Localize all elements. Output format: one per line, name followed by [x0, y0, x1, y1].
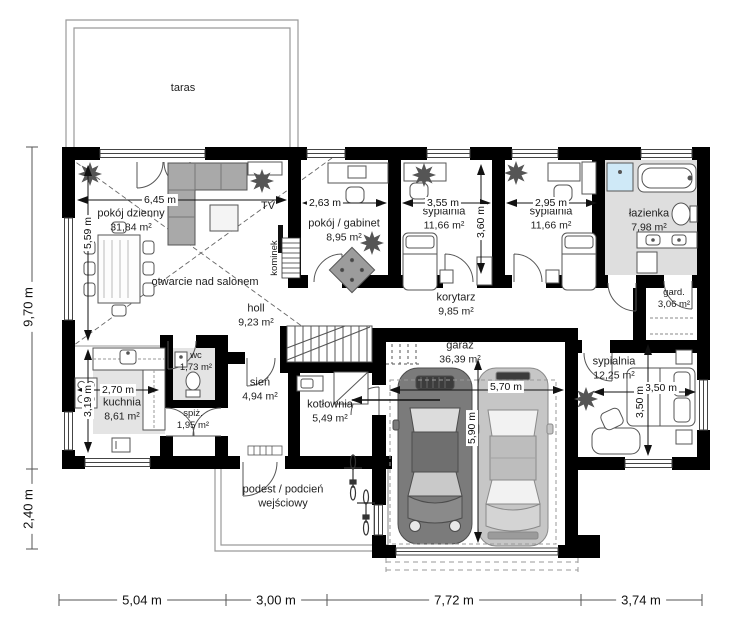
dim-living-width: 6,45 m [142, 194, 178, 206]
room-label-living: pokój dzienny31,84 m² [97, 208, 164, 235]
wardrobe-shelves [650, 318, 695, 334]
dim-exterior-bottom-1: 5,04 m [117, 593, 167, 608]
dim-exterior-bottom-4: 3,74 m [616, 593, 666, 608]
room-label-corridor: korytarz9,85 m² [436, 292, 475, 319]
floor-plan-drawing [0, 0, 735, 637]
room-label-wc: wc1,73 m² [180, 350, 212, 374]
dim-garage-width: 5,70 m [488, 381, 524, 393]
dim-bedroom3-width: 3,50 m [643, 382, 679, 394]
car-light [473, 368, 553, 546]
room-label-entrance-porch: podest / podcień wejściowy [224, 483, 342, 511]
room-label-boiler-room: kotłownia5,49 m² [307, 399, 353, 426]
room-label-vestibule: sień4,94 m² [242, 377, 278, 404]
dim-kitchen-width: 2,70 m [100, 384, 136, 396]
room-label-wardrobe: gard.3,06 m² [658, 287, 690, 311]
room-label-bedroom3: sypialnia12,25 m² [593, 356, 636, 383]
hall-closet [248, 446, 282, 455]
dim-exterior-left-lower: 2,40 m [21, 484, 36, 534]
dim-bedroom1-height: 3,60 m [475, 204, 487, 240]
dim-garage-depth: 5,90 m [466, 410, 478, 446]
room-label-pantry: spiż.1,95 m² [177, 408, 209, 432]
room-label-office: pokój / gabinet8,95 m² [308, 218, 380, 245]
room-label-open-space: otwarcie nad salonem [151, 276, 258, 290]
room-label-kitchen: kuchnia8,61 m² [103, 397, 141, 424]
dim-exterior-left-upper: 9,70 m [21, 282, 36, 332]
dim-exterior-bottom-3: 7,72 m [429, 593, 479, 608]
dim-office-width: 2,63 m [307, 197, 343, 209]
room-label-garage: garaż36,39 m² [439, 340, 480, 367]
room-label-taras: taras [171, 82, 195, 96]
dim-bedroom2-width: 2,95 m [533, 197, 569, 209]
living-room-furniture [84, 162, 283, 316]
room-label-bedroom2: sypialnia11,66 m² [530, 206, 573, 233]
dim-exterior-bottom-2: 3,00 m [251, 593, 301, 608]
floor-plan: taras pokój dzienny31,84 m² otwarcie nad… [0, 0, 735, 637]
dim-living-height: 5,59 m [82, 215, 94, 251]
room-label-bathroom: łazienka7,98 m² [629, 208, 669, 235]
fireplace [282, 238, 300, 278]
dim-kitchen-height: 3,19 m [82, 383, 94, 419]
fireplace-label: kominek [269, 240, 281, 275]
car-dark [393, 368, 477, 544]
tv-label: TV [261, 200, 275, 214]
dim-bedroom3-height: 3,50 m [634, 384, 646, 420]
dim-bedroom1-width: 3,55 m [425, 197, 461, 209]
room-label-bedroom1: sypialnia11,66 m² [423, 206, 466, 233]
driveway-dashes [386, 558, 578, 575]
room-label-hall: holl9,23 m² [238, 303, 274, 330]
